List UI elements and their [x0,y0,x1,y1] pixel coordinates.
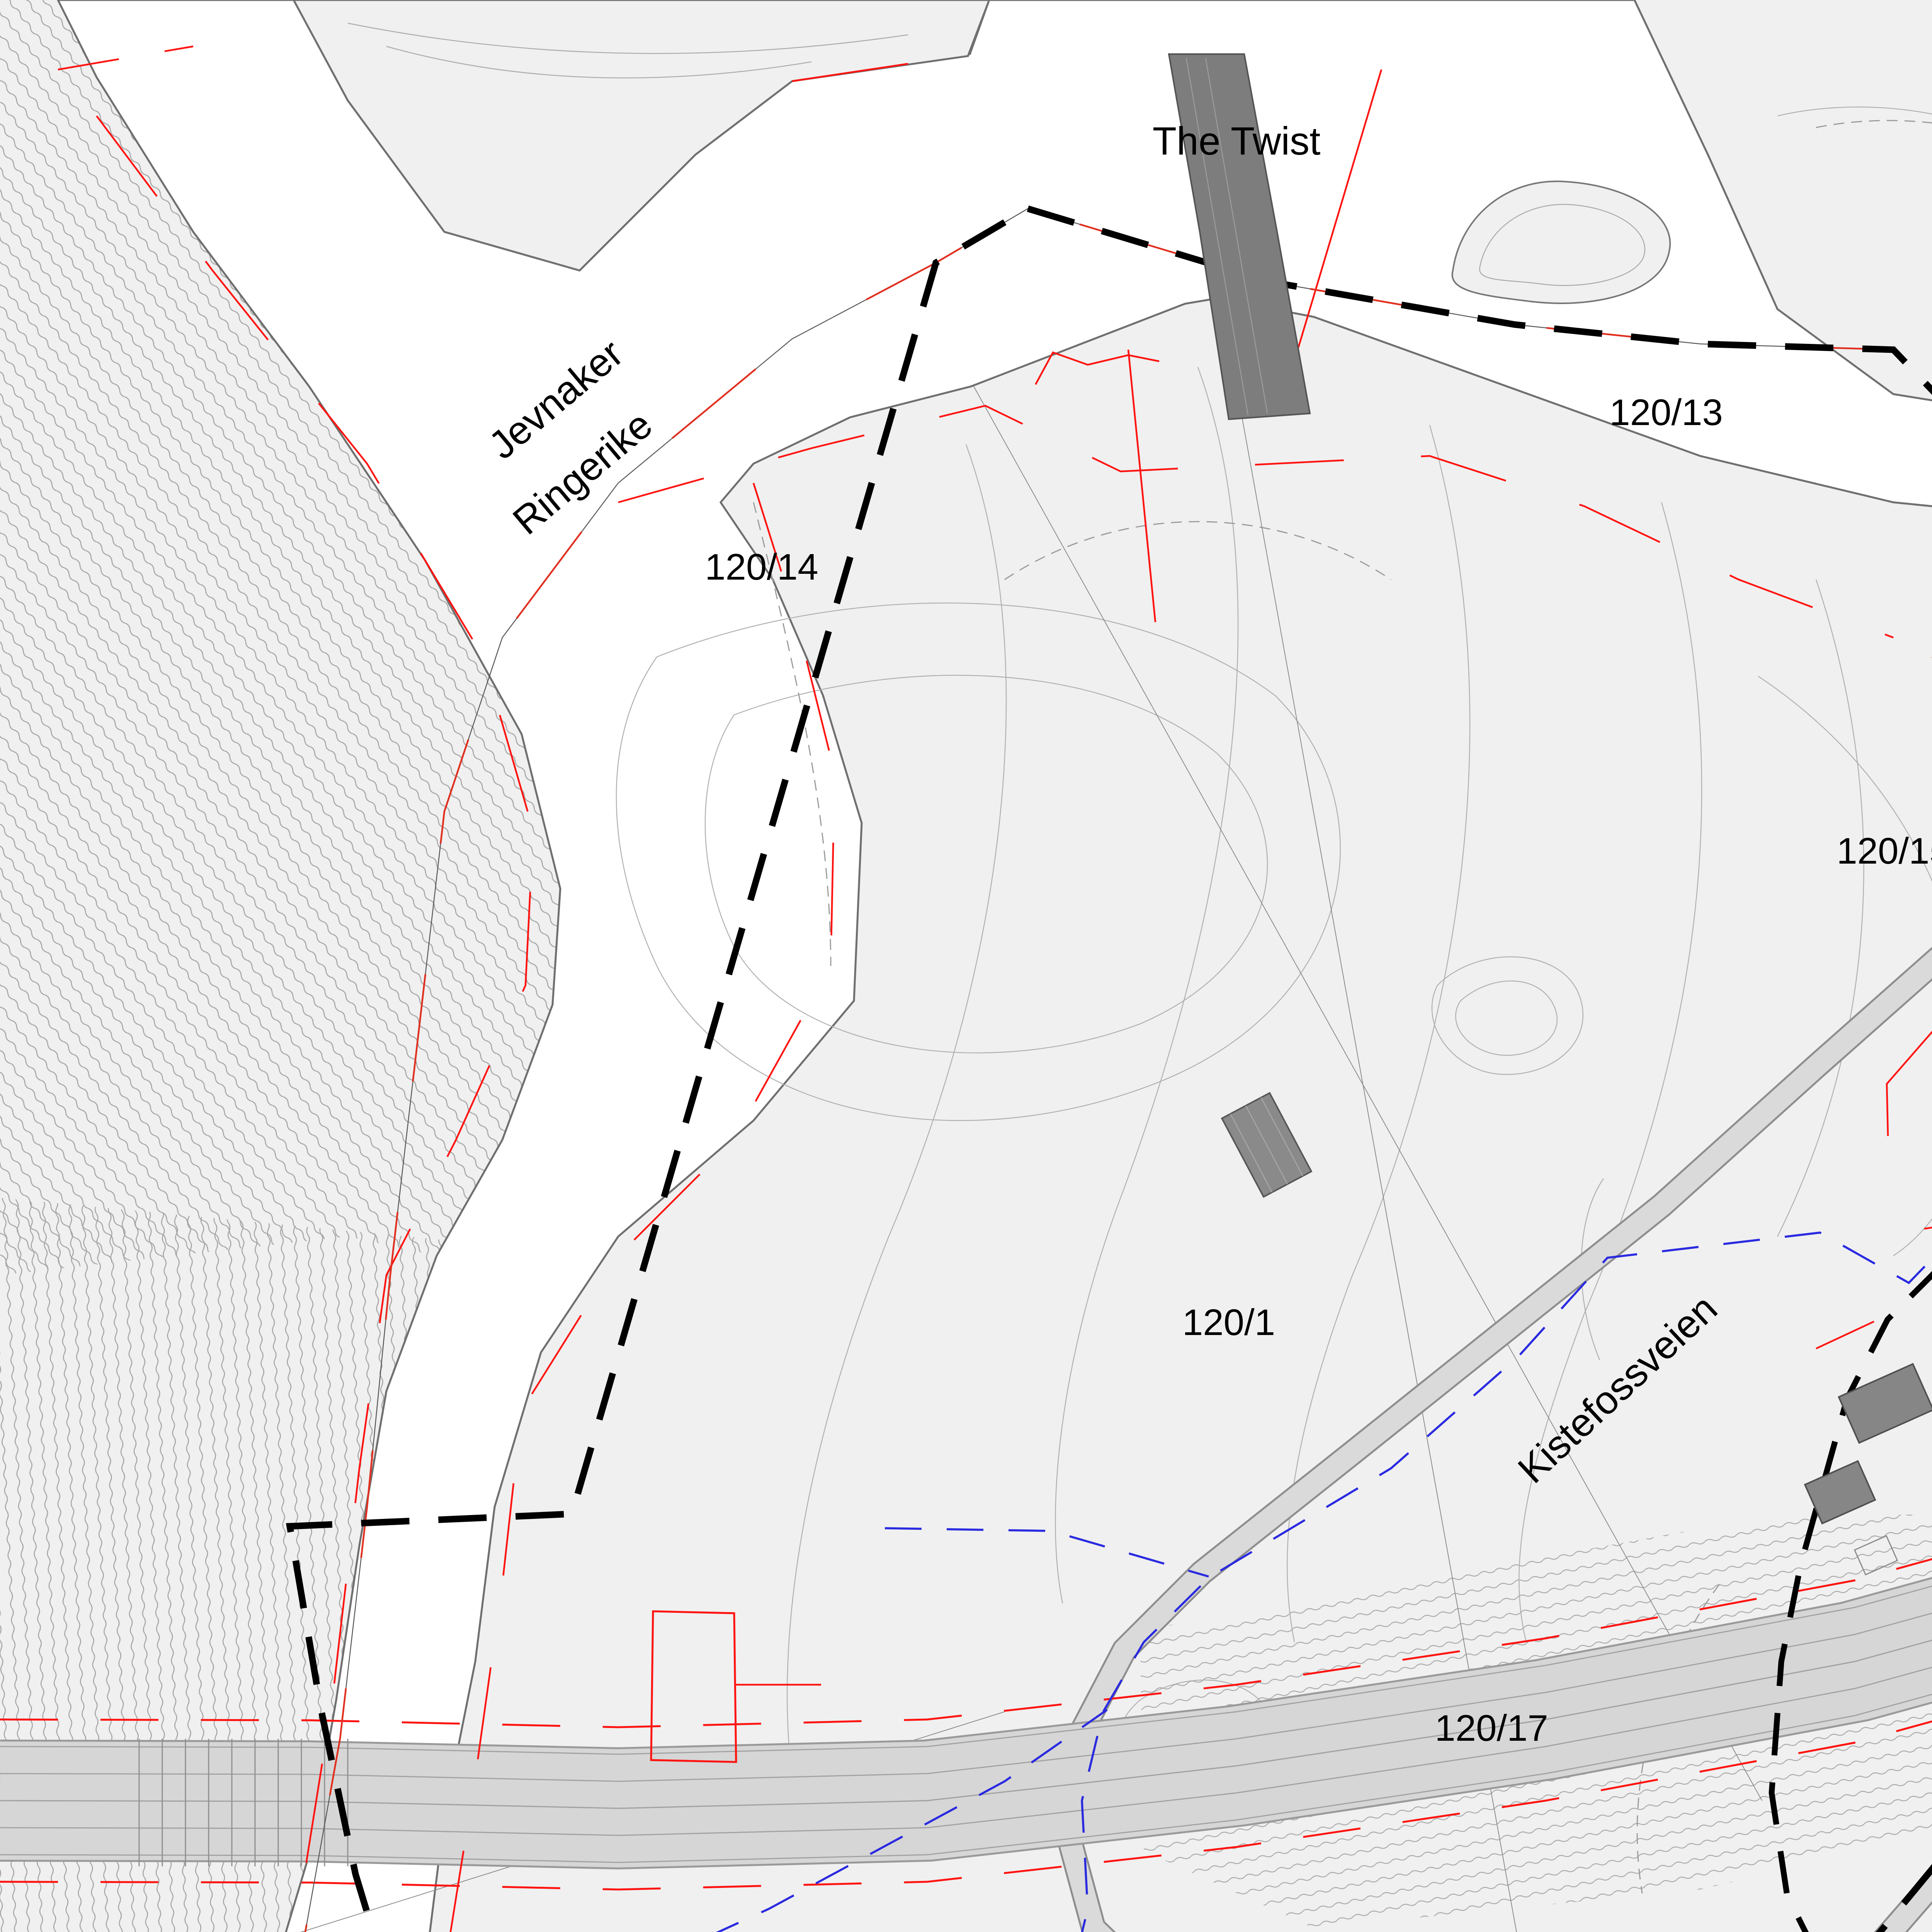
site-plan-map: The Twist Jevnaker Ringerike Randselva K… [0,0,1932,1932]
label-parcel-120-17: 120/17 [1435,1708,1548,1749]
label-parcel-120-14: 120/14 [705,546,818,588]
label-parcel-120-15: 120/15 [1837,830,1932,872]
label-parcel-120-1: 120/1 [1182,1302,1275,1343]
label-parcel-120-13: 120/13 [1609,392,1723,433]
label-the-twist: The Twist [1153,119,1321,163]
